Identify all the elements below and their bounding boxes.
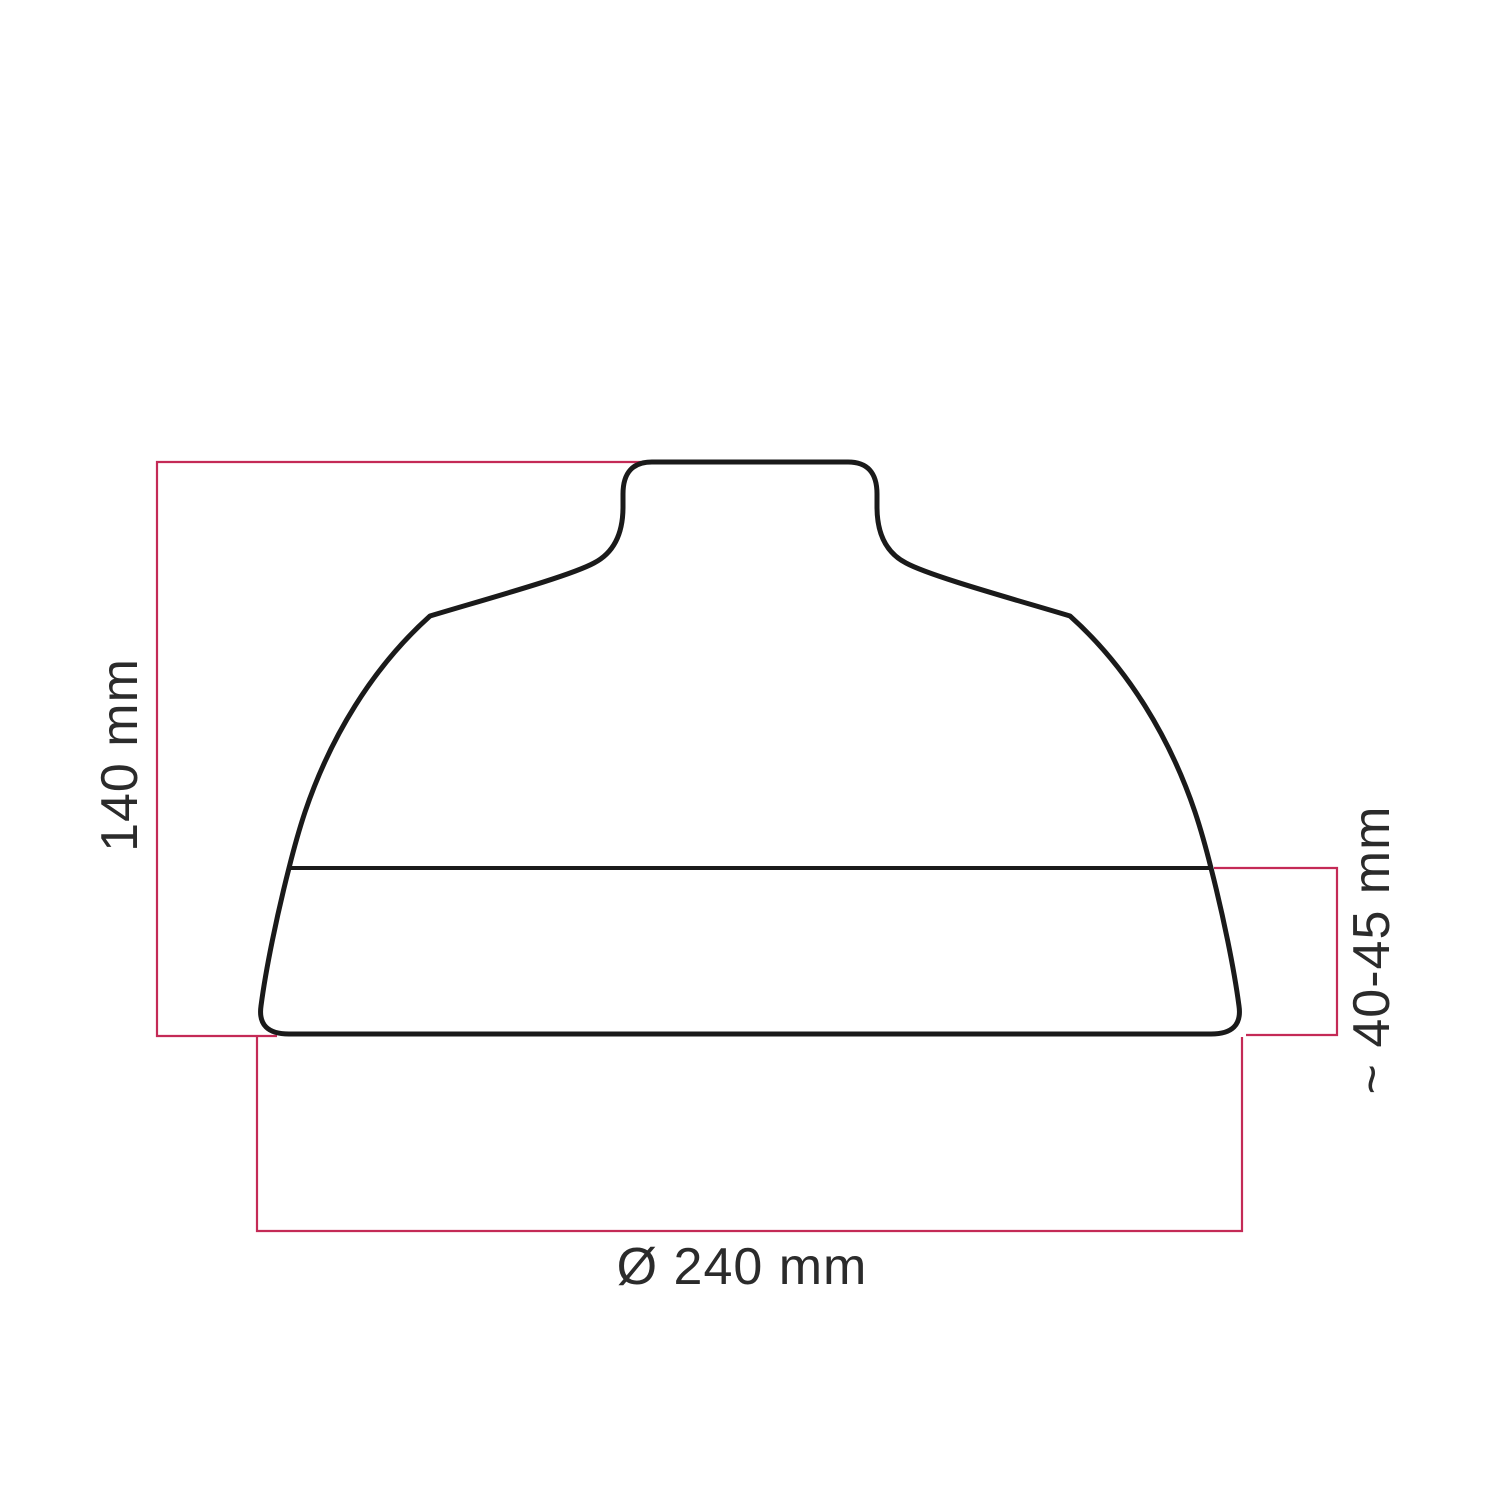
lampshade-outline	[261, 462, 1240, 1034]
height-dimension-line	[157, 462, 641, 1036]
dimension-diagram: 140 mm ~ 40-45 mm Ø 240 mm	[0, 0, 1500, 1500]
diameter-dimension-line	[257, 1037, 1242, 1231]
height-dimension-label: 140 mm	[90, 658, 150, 852]
diameter-dimension-label: Ø 240 mm	[617, 1237, 868, 1297]
side-height-dimension-label: ~ 40-45 mm	[1342, 806, 1402, 1095]
